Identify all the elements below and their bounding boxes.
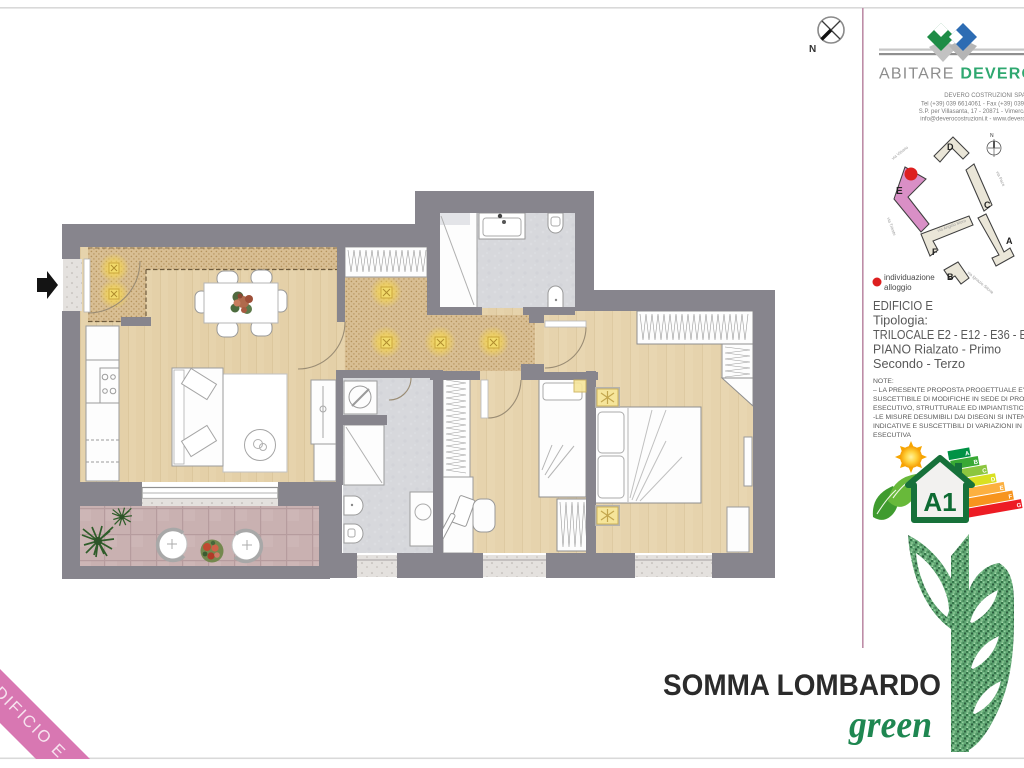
svg-text:ESECUTIVA: ESECUTIVA xyxy=(873,432,911,439)
svg-text:SUSCETTIBILE DI MODIFICHE IN S: SUSCETTIBILE DI MODIFICHE IN SEDE DI PRO… xyxy=(873,396,1024,403)
svg-text:E: E xyxy=(896,186,903,197)
svg-text:individuazione: individuazione xyxy=(884,273,935,282)
svg-text:alloggio: alloggio xyxy=(884,283,912,292)
svg-text:green: green xyxy=(848,704,932,746)
svg-text:ESECUTIVO, STRUTTURALE ED IMPI: ESECUTIVO, STRUTTURALE ED IMPIANTISTICO. xyxy=(873,405,1024,412)
svg-text:C: C xyxy=(984,200,991,210)
svg-text:Secondo - Terzo: Secondo - Terzo xyxy=(873,357,965,371)
svg-text:A1: A1 xyxy=(923,487,956,517)
svg-text:SOMMA LOMBARDO: SOMMA LOMBARDO xyxy=(663,669,941,702)
svg-text:Tel (+39) 039 6614061 - Fax (+: Tel (+39) 039 6614061 - Fax (+39) 039 66… xyxy=(921,102,1024,108)
svg-text:via Pace: via Pace xyxy=(995,170,1007,187)
svg-text:D: D xyxy=(947,142,954,152)
svg-text:B: B xyxy=(947,272,954,282)
svg-text:info@deverocostruzioni.it - ww: info@deverocostruzioni.it - www.deveroco… xyxy=(920,117,1024,123)
svg-text:via Vittorio: via Vittorio xyxy=(891,144,910,160)
svg-text:via Ignazio Silone: via Ignazio Silone xyxy=(966,270,995,295)
svg-text:N: N xyxy=(809,44,816,55)
svg-text:ABITARE DEVERO: ABITARE DEVERO xyxy=(879,66,1024,83)
svg-text:-LE MISURE DESUMIBILI DAI DISE: -LE MISURE DESUMIBILI DAI DISEGNI SI INT… xyxy=(873,414,1024,421)
svg-text:EDIFICIO E: EDIFICIO E xyxy=(873,299,933,313)
svg-text:PIANO Rialzato - Primo: PIANO Rialzato - Primo xyxy=(873,343,1001,357)
svg-text:Tipologia:: Tipologia: xyxy=(873,314,928,328)
svg-text:DEVERO COSTRUZIONI SPA: DEVERO COSTRUZIONI SPA xyxy=(944,93,1024,99)
svg-text:NOTE:: NOTE: xyxy=(873,378,894,385)
svg-text:– LA PRESENTE PROPOSTA PROGETT: – LA PRESENTE PROPOSTA PROGETTUALE E' xyxy=(873,387,1024,394)
svg-text:S.P. per Villasanta, 17 - 2087: S.P. per Villasanta, 17 - 20871 - Vimerc… xyxy=(919,109,1024,115)
svg-text:TRILOCALE E2 - E12 - E36 - E6: TRILOCALE E2 - E12 - E36 - E6 xyxy=(873,328,1024,342)
svg-text:via Trieste: via Trieste xyxy=(886,217,897,237)
svg-text:F: F xyxy=(932,247,938,257)
svg-text:N: N xyxy=(990,133,994,139)
svg-text:A: A xyxy=(1006,236,1013,246)
svg-text:INDICATIVE E SUSCETTIBILI DI V: INDICATIVE E SUSCETTIBILI DI VARIAZIONI … xyxy=(873,423,1024,430)
